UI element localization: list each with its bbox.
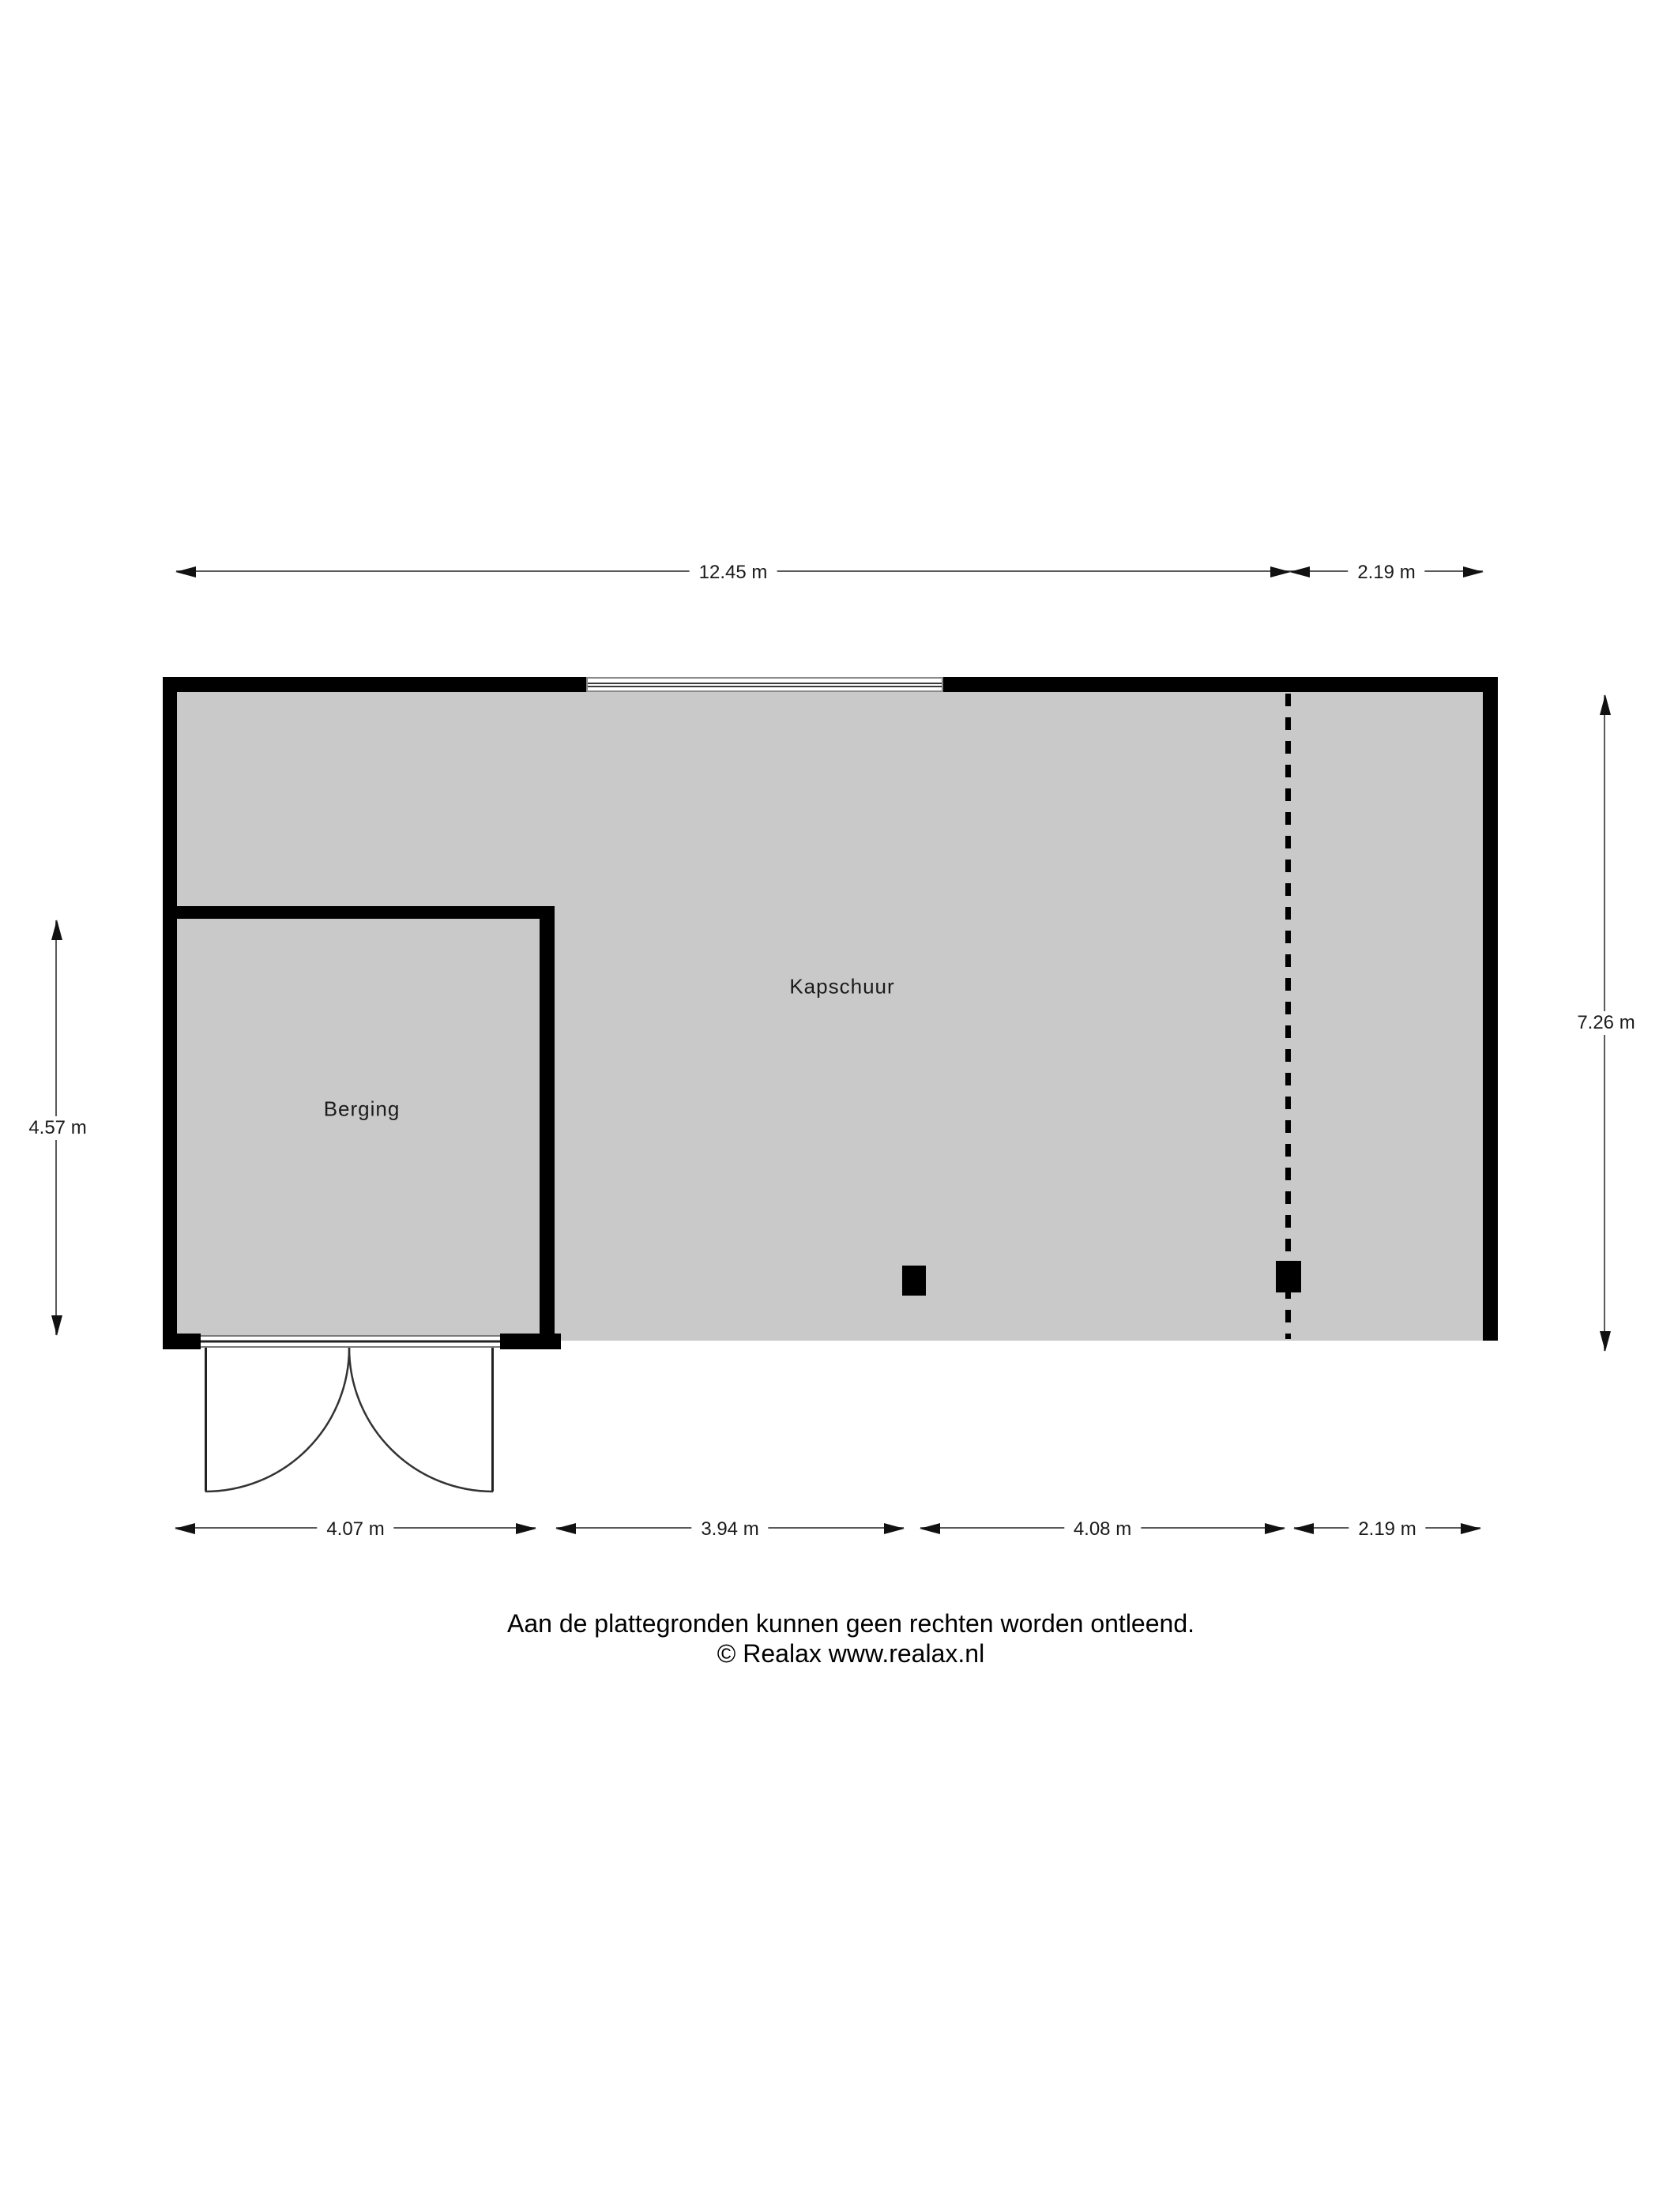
footer-line-1: Aan de plattegronden kunnen geen rechten… xyxy=(507,1608,1194,1638)
dim-top-main: 12.45 m xyxy=(176,570,1290,572)
floor-area xyxy=(163,677,1498,1341)
wall-left xyxy=(163,677,177,1349)
support-post-2 xyxy=(1276,1261,1301,1292)
door-swing-arc-right xyxy=(349,1348,493,1492)
arrow-right-icon xyxy=(1461,1523,1481,1534)
door-leaf-right xyxy=(491,1348,494,1492)
arrow-down-icon xyxy=(1600,1331,1611,1352)
berging-wall-top xyxy=(163,906,555,919)
dim-bottom-4-label: 2.19 m xyxy=(1349,1518,1425,1541)
berging-wall-right xyxy=(540,919,555,1334)
arrow-up-icon xyxy=(51,920,62,940)
arrow-right-icon xyxy=(516,1523,536,1534)
berging-wall-bottom-left xyxy=(163,1334,201,1349)
arrow-left-icon xyxy=(1289,566,1310,577)
dim-left: 4.57 m xyxy=(55,920,57,1335)
dim-top-right-label: 2.19 m xyxy=(1348,561,1424,585)
dim-bottom-1-label: 4.07 m xyxy=(317,1518,393,1541)
arrow-left-icon xyxy=(555,1523,576,1534)
door-swing-arc-left xyxy=(205,1348,349,1492)
dashed-divider-line xyxy=(1285,694,1291,1339)
dim-left-label: 4.57 m xyxy=(19,1116,96,1140)
floorplan: Kapschuur Berging 12.45 m 2.19 m 7.26 m … xyxy=(0,0,1659,2212)
arrow-right-icon xyxy=(1463,566,1484,577)
door-sill xyxy=(201,1335,500,1348)
arrow-left-icon xyxy=(1293,1523,1314,1534)
wall-top-left-segment xyxy=(163,677,586,692)
arrow-right-icon xyxy=(1265,1523,1285,1534)
door-leaf-left xyxy=(205,1348,207,1492)
dim-bottom-1: 4.07 m xyxy=(175,1527,536,1529)
footer-disclaimer: Aan de plattegronden kunnen geen rechten… xyxy=(507,1608,1194,1668)
dim-right-label: 7.26 m xyxy=(1567,1011,1644,1035)
arrow-left-icon xyxy=(175,1523,195,1534)
arrow-right-icon xyxy=(884,1523,905,1534)
room-label-berging: Berging xyxy=(324,1097,401,1122)
dim-bottom-3-label: 4.08 m xyxy=(1064,1518,1141,1541)
footer-line-2: © Realax www.realax.nl xyxy=(507,1638,1194,1668)
dim-bottom-3: 4.08 m xyxy=(920,1527,1285,1529)
room-label-kapschuur: Kapschuur xyxy=(789,975,894,999)
support-post-1 xyxy=(902,1266,926,1296)
dim-top-main-label: 12.45 m xyxy=(690,561,777,585)
arrow-up-icon xyxy=(1600,694,1611,715)
dim-bottom-4: 2.19 m xyxy=(1294,1527,1480,1529)
dim-top-right: 2.19 m xyxy=(1290,570,1483,572)
berging-wall-bottom-right xyxy=(500,1334,561,1349)
dim-bottom-2-label: 3.94 m xyxy=(691,1518,768,1541)
door-sill-midline xyxy=(201,1341,500,1343)
wall-top-right-segment xyxy=(943,677,1498,692)
arrow-down-icon xyxy=(51,1315,62,1336)
arrow-left-icon xyxy=(920,1523,940,1534)
arrow-right-icon xyxy=(1270,566,1291,577)
wall-right xyxy=(1483,677,1498,1341)
window-pane-lines xyxy=(588,683,942,687)
dim-bottom-2: 3.94 m xyxy=(556,1527,904,1529)
dim-right: 7.26 m xyxy=(1604,695,1605,1351)
arrow-left-icon xyxy=(175,566,196,577)
window-top xyxy=(586,677,943,692)
